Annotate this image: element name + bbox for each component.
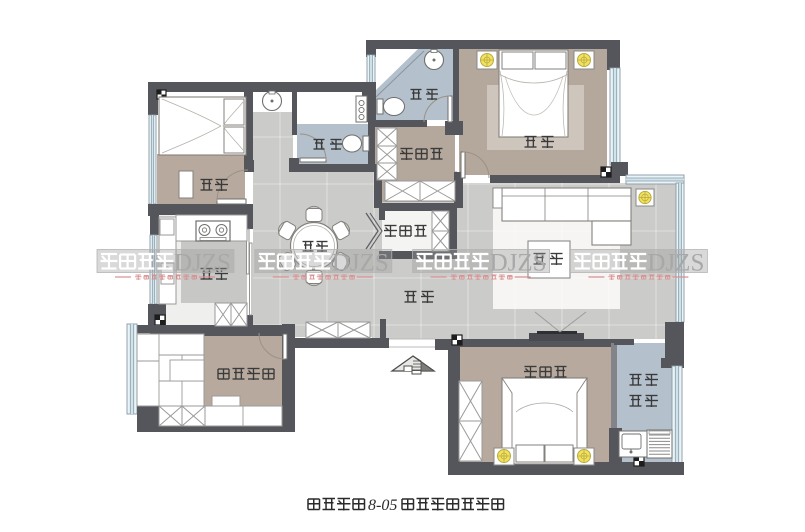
svg-text:DJZS: DJZS bbox=[332, 250, 389, 277]
svg-text:DJZS: DJZS bbox=[174, 250, 231, 277]
svg-text:DJZS: DJZS bbox=[490, 250, 547, 277]
svg-text:DJZS: DJZS bbox=[647, 250, 704, 277]
svg-text:8-05: 8-05 bbox=[368, 497, 397, 514]
